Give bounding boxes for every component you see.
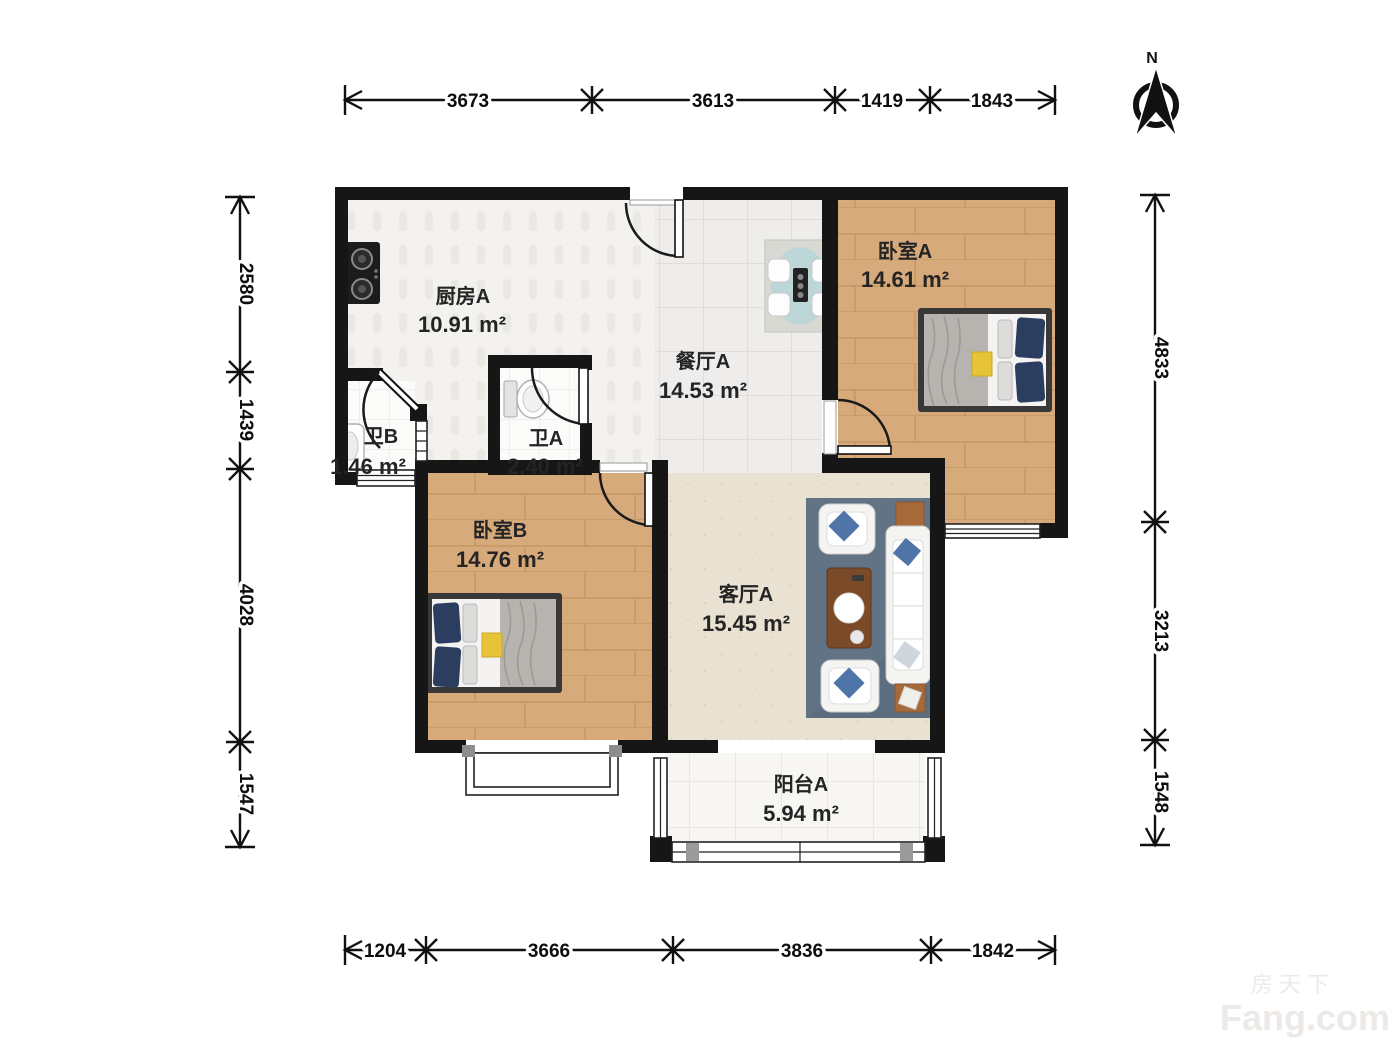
dim-top-3: 1419 [861, 91, 903, 112]
bedroom-b-area: 14.76 m² [456, 547, 544, 572]
bath-b-name: 卫B [364, 426, 398, 448]
dim-left-2: 1439 [235, 399, 256, 441]
bedroom-b-bay-window [462, 745, 622, 795]
balcony-area: 5.94 m² [763, 801, 839, 826]
living-name: 客厅A [718, 582, 773, 606]
dining-name: 餐厅A [676, 349, 730, 373]
dim-left-3: 4028 [235, 584, 256, 626]
dim-bottom-3: 3836 [781, 941, 823, 962]
dim-left-1: 2580 [235, 263, 256, 305]
dim-top-4: 1843 [971, 91, 1013, 112]
dim-top-1: 3673 [447, 91, 489, 112]
balcony-name: 阳台A [774, 772, 828, 796]
north-label: N [1146, 50, 1158, 67]
bath-b-frame [416, 421, 427, 461]
watermark-cn: 房天下 [1251, 972, 1335, 997]
bedroom-b-name: 卧室B [473, 518, 527, 542]
balcony-floor [665, 753, 925, 845]
dim-right-3: 1548 [1150, 771, 1171, 813]
dim-left-4: 1547 [235, 773, 256, 815]
balcony-bottom-window [672, 842, 925, 862]
dimension-top: 3673 3613 1419 1843 [345, 85, 1055, 115]
dim-right-1: 4833 [1150, 337, 1171, 379]
bedroom-a-area: 14.61 m² [861, 267, 949, 292]
bedroom-a-window [945, 524, 1040, 538]
bed-bedroom-b [426, 593, 562, 693]
dining-area: 14.53 m² [659, 378, 747, 403]
coffee-table [827, 568, 871, 648]
dimension-bottom: 1204 3666 3836 1842 [345, 935, 1055, 965]
floor-plan-svg: 3673 3613 1419 1843 1204 3666 3836 1842 … [0, 0, 1400, 1050]
dimension-right: 4833 3213 1548 [1140, 195, 1171, 845]
living-room-set [806, 498, 932, 718]
balcony-right-window [928, 758, 941, 838]
dim-bottom-1: 1204 [364, 941, 407, 962]
watermark-en: Fang.com [1220, 997, 1390, 1038]
dim-bottom-2: 3666 [528, 941, 570, 962]
floor-plan-page: 3673 3613 1419 1843 1204 3666 3836 1842 … [0, 0, 1400, 1050]
bath-a-area: 2.40 m² [507, 454, 583, 479]
living-area: 15.45 m² [702, 611, 790, 636]
armchair-top [819, 504, 875, 554]
bath-a-name: 卫A [529, 428, 563, 450]
bedroom-a-name: 卧室A [878, 239, 932, 263]
armchair-bottom [821, 660, 879, 712]
balcony-left-window [654, 758, 667, 838]
dim-right-2: 3213 [1150, 610, 1171, 652]
dim-top-2: 3613 [692, 91, 734, 112]
sofa [886, 526, 930, 684]
bed-bedroom-a [918, 308, 1052, 412]
side-table-bottom [895, 684, 925, 712]
watermark: 房天下 Fang.com [1220, 972, 1390, 1038]
dimension-left: 2580 1439 4028 1547 [225, 197, 256, 847]
dim-bottom-4: 1842 [972, 941, 1014, 962]
north-arrow: N [1135, 50, 1177, 137]
bath-b-area: 1.46 m² [330, 454, 406, 479]
kitchen-area: 10.91 m² [418, 312, 506, 337]
stove [346, 242, 380, 304]
kitchen-name: 厨房A [436, 284, 490, 308]
